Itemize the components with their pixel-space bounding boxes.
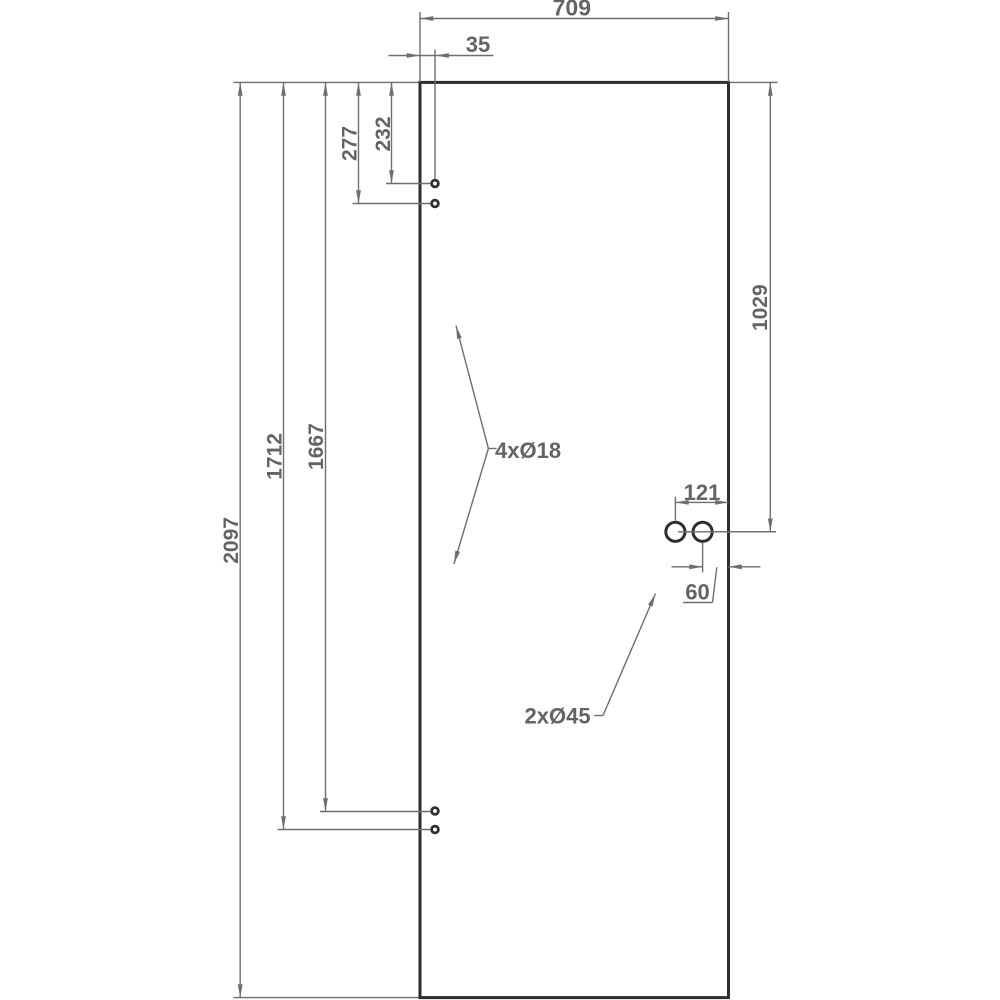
svg-text:60: 60 [685,580,709,605]
svg-text:232: 232 [372,116,395,151]
svg-text:1029: 1029 [749,284,772,331]
svg-text:709: 709 [553,0,591,21]
svg-text:277: 277 [338,126,361,161]
svg-text:35: 35 [466,32,490,57]
svg-text:2xØ45: 2xØ45 [525,704,591,729]
svg-text:1712: 1712 [264,433,287,480]
svg-text:2097: 2097 [220,517,243,564]
svg-text:1667: 1667 [305,423,328,470]
svg-text:121: 121 [684,480,721,505]
svg-text:4xØ18: 4xØ18 [495,438,561,463]
